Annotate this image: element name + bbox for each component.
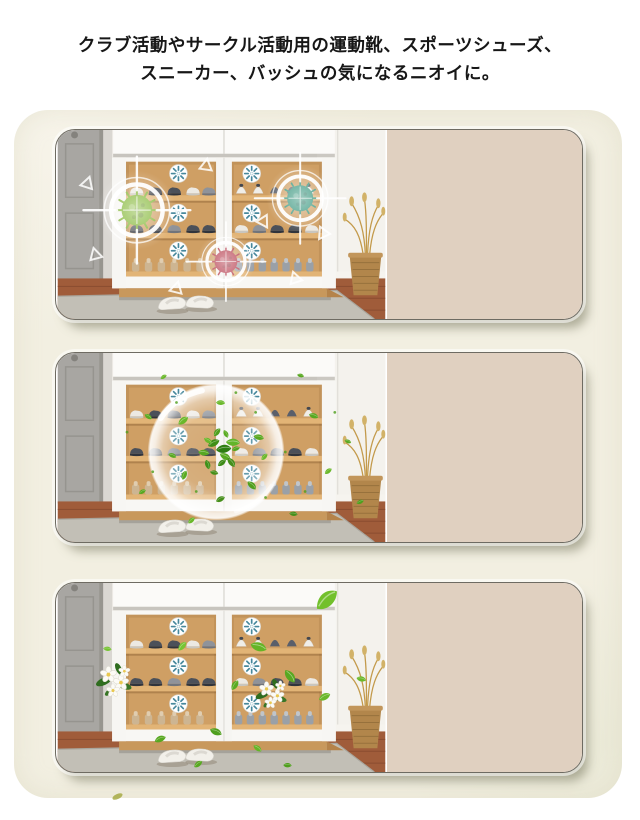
content-board	[14, 110, 622, 798]
shoe-cabinet-photo-bubble	[56, 353, 387, 542]
shoe-cabinet-photo-germs	[56, 130, 387, 319]
panel-side-area	[387, 130, 582, 319]
bubble-icon	[148, 384, 285, 521]
panel-fresh-result	[55, 582, 583, 773]
shoe-cabinet-photo-fresh	[56, 583, 387, 772]
panel-deodorizing-bubble	[55, 352, 583, 543]
page-title-line2: スニーカー、バッシュの気になるニオイに。	[140, 63, 500, 83]
panel-germ-targeting	[55, 129, 583, 320]
panel-side-area	[387, 353, 582, 542]
panel-side-area	[387, 583, 582, 772]
page-title-line1: クラブ活動やサークル活動用の運動靴、スポーツシューズ、	[78, 35, 562, 55]
page-title: クラブ活動やサークル活動用の運動靴、スポーツシューズ、スニーカー、バッシュの気に…	[0, 31, 640, 88]
